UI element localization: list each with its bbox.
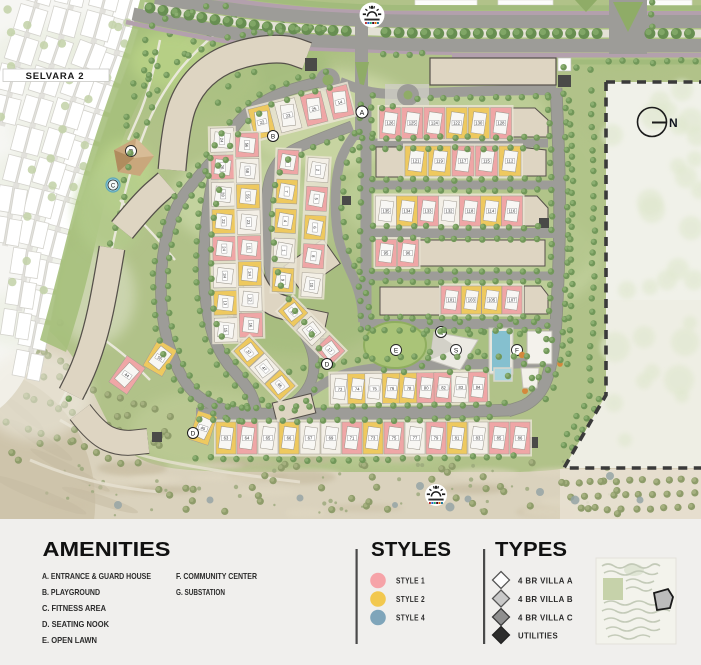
svg-text:83: 83 [458,385,463,390]
svg-text:95: 95 [384,251,389,256]
svg-text:E: E [394,348,399,355]
svg-text:SELVARA 2: SELVARA 2 [26,71,85,82]
svg-text:STYLE 2: STYLE 2 [396,595,425,604]
svg-text:73: 73 [338,387,343,392]
svg-text:34: 34 [222,273,227,278]
svg-text:117: 117 [460,159,467,164]
svg-text:D. SEATING NOOK: D. SEATING NOOK [42,620,109,629]
svg-text:135: 135 [383,209,391,214]
svg-text:75: 75 [372,386,377,391]
svg-text:15: 15 [223,328,228,333]
svg-text:56: 56 [244,143,249,148]
svg-text:TYPES: TYPES [495,539,567,561]
svg-text:82: 82 [441,385,446,390]
svg-text:B: B [271,134,275,141]
svg-text:125: 125 [409,121,417,126]
svg-text:124: 124 [431,121,439,126]
svg-text:121: 121 [413,159,421,164]
svg-text:4 BR VILLA B: 4 BR VILLA B [518,595,573,604]
svg-text:119: 119 [436,159,443,164]
svg-text:22: 22 [221,219,226,224]
svg-text:118: 118 [467,209,474,214]
svg-text:34: 34 [247,271,252,276]
svg-text:105: 105 [488,298,496,303]
svg-text:130: 130 [475,121,483,126]
svg-text:G. SUBSTATION: G. SUBSTATION [176,588,225,597]
svg-text:80: 80 [424,385,429,390]
svg-text:69: 69 [329,436,334,441]
svg-text:75: 75 [392,436,397,441]
svg-text:16: 16 [248,323,253,328]
svg-text:76: 76 [389,386,394,391]
svg-text:STYLE 1: STYLE 1 [396,577,425,586]
svg-text:67: 67 [308,436,313,441]
svg-text:79: 79 [434,436,439,441]
svg-text:4 BR VILLA C: 4 BR VILLA C [518,614,573,623]
svg-text:AMENITIES: AMENITIES [43,539,171,561]
svg-text:11: 11 [247,246,252,251]
svg-text:115: 115 [483,159,490,164]
svg-text:E. OPEN LAWN: E. OPEN LAWN [42,636,97,645]
svg-text:128: 128 [498,121,506,126]
svg-text:81: 81 [455,436,460,441]
svg-text:84: 84 [476,385,481,390]
svg-text:C. FITNESS AREA: C. FITNESS AREA [42,604,106,613]
svg-text:24: 24 [222,246,227,251]
svg-text:4 BR VILLA A: 4 BR VILLA A [518,577,573,586]
svg-text:N: N [669,116,678,130]
svg-text:STYLES: STYLES [371,539,451,561]
svg-text:B. PLAYGROUND: B. PLAYGROUND [42,588,100,597]
svg-text:112: 112 [507,159,514,164]
svg-text:F: F [515,348,519,355]
svg-text:74: 74 [355,386,360,391]
svg-text:64: 64 [245,436,250,441]
svg-text:55: 55 [245,194,250,199]
svg-text:96: 96 [406,251,411,256]
svg-text:73: 73 [371,436,376,441]
svg-text:A. ENTRANCE & GUARD HOUSE: A. ENTRANCE & GUARD HOUSE [42,572,151,581]
svg-text:114: 114 [488,209,495,214]
svg-text:107: 107 [509,298,517,303]
svg-text:STYLE 4: STYLE 4 [396,614,425,623]
svg-text:S: S [454,348,459,355]
svg-text:116: 116 [509,209,516,214]
svg-text:101: 101 [448,298,456,303]
svg-text:UTILITIES: UTILITIES [518,632,558,641]
svg-text:63: 63 [224,436,229,441]
svg-text:83: 83 [476,436,481,441]
svg-text:71: 71 [350,436,355,441]
svg-text:132: 132 [446,209,454,214]
svg-text:F. COMMUNITY CENTER: F. COMMUNITY CENTER [176,572,257,581]
svg-text:77: 77 [413,436,418,441]
svg-text:122: 122 [453,121,461,126]
svg-text:66: 66 [287,436,292,441]
svg-text:126: 126 [387,121,395,126]
svg-text:13: 13 [223,301,228,306]
svg-text:C: C [111,183,116,189]
svg-text:65: 65 [266,436,271,441]
svg-text:24: 24 [219,138,224,143]
svg-text:78: 78 [407,386,412,391]
svg-text:103: 103 [468,298,476,303]
svg-text:A: A [360,110,365,117]
svg-text:58: 58 [245,168,250,173]
svg-text:134: 134 [404,209,412,214]
svg-text:85: 85 [497,436,502,441]
svg-text:23: 23 [246,220,251,225]
svg-text:12: 12 [248,297,253,302]
svg-text:D: D [325,362,330,369]
svg-text:133: 133 [425,209,433,214]
svg-text:86: 86 [518,436,523,441]
svg-text:D: D [191,431,196,438]
svg-text:28: 28 [220,192,225,197]
